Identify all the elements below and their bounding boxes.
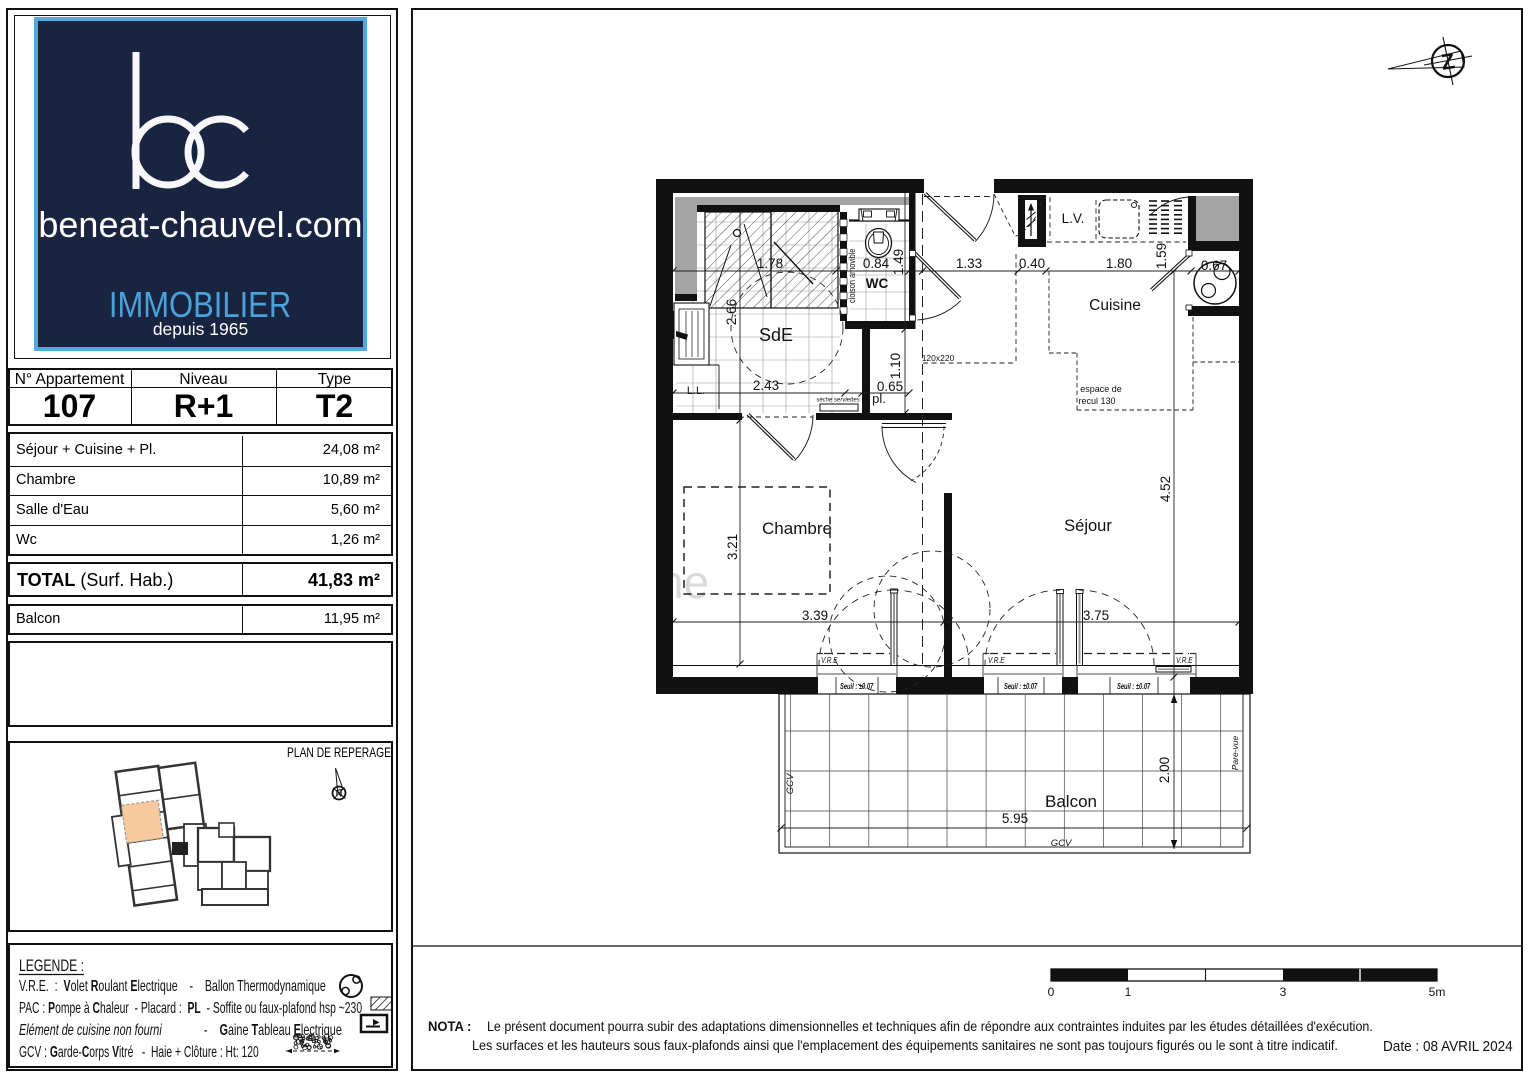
svg-text:1.78: 1.78 (757, 256, 783, 271)
svg-text:1: 1 (1125, 985, 1132, 999)
svg-text:Cuisine: Cuisine (1089, 297, 1141, 314)
svg-text:Les surfaces et les hauteurs s: Les surfaces et les hauteurs sous faux-p… (472, 1037, 1338, 1053)
svg-text:3.75: 3.75 (1083, 608, 1109, 623)
svg-text:3.39: 3.39 (802, 608, 828, 623)
svg-text:0.40: 0.40 (1019, 256, 1045, 271)
svg-text:WC: WC (866, 276, 889, 291)
svg-text:espace de: espace de (1080, 384, 1122, 394)
svg-text:L.L.: L.L. (687, 385, 705, 397)
svg-text:Seuil : ±0.07: Seuil : ±0.07 (1117, 683, 1151, 691)
svg-text:V.R.E: V.R.E (1176, 655, 1193, 665)
svg-text:120x220: 120x220 (922, 353, 955, 363)
svg-text:sèche serviettes: sèche serviettes (816, 398, 859, 404)
svg-text:recul 130: recul 130 (1078, 396, 1115, 406)
svg-text:V.R.E: V.R.E (821, 655, 838, 665)
svg-text:5.95: 5.95 (1002, 811, 1028, 826)
svg-text:1.49: 1.49 (891, 249, 906, 275)
svg-text:5m: 5m (1429, 985, 1446, 999)
svg-text:Elément de cuisine non fourni: Elément de cuisine non fourni - Gaine Ta… (19, 1021, 342, 1038)
svg-text:0.84: 0.84 (863, 256, 890, 271)
svg-text:N: N (336, 789, 343, 799)
svg-text:GCV: GCV (785, 772, 796, 794)
svg-text:SdE: SdE (759, 325, 793, 345)
svg-text:GCV: GCV (1051, 838, 1073, 849)
svg-text:Le présent document pourra sub: Le présent document pourra subir des ada… (487, 1018, 1373, 1034)
svg-text:Séjour: Séjour (1064, 517, 1112, 535)
svg-text:V.R.E: V.R.E (988, 655, 1005, 665)
svg-text:NOTA :: NOTA : (428, 1019, 471, 1035)
svg-text:Seuil : ±0.07: Seuil : ±0.07 (1004, 683, 1038, 691)
svg-text:PAC : Pompe à Chaleur - Placa: PAC : Pompe à Chaleur - Placard : PL - S… (19, 999, 362, 1017)
svg-text:1.80: 1.80 (1106, 256, 1132, 271)
svg-text:Seuil : ±0.07: Seuil : ±0.07 (840, 683, 874, 691)
svg-text:Chambre: Chambre (762, 519, 832, 538)
svg-text:0: 0 (1048, 985, 1055, 999)
svg-text:0.67: 0.67 (1201, 258, 1227, 273)
svg-text:2.66: 2.66 (724, 299, 739, 325)
svg-text:3.21: 3.21 (725, 534, 740, 560)
svg-text:Date : 08 AVRIL 2024: Date : 08 AVRIL 2024 (1383, 1038, 1513, 1055)
svg-text:2.00: 2.00 (1157, 757, 1172, 783)
svg-text:Pare-vue: Pare-vue (1230, 735, 1240, 770)
svg-text:V.R.E. : Volet Roulant Elect: V.R.E. : Volet Roulant Electrique - Ball… (19, 977, 326, 994)
svg-text:LEGENDE :: LEGENDE : (19, 957, 84, 975)
svg-text:1.59: 1.59 (1154, 243, 1169, 269)
svg-text:2.43: 2.43 (753, 378, 779, 393)
svg-text:1.10: 1.10 (888, 353, 903, 379)
svg-text:L.V.: L.V. (1062, 211, 1085, 226)
svg-text:pl.: pl. (872, 391, 886, 406)
svg-text:4.52: 4.52 (1158, 476, 1173, 502)
svg-text:GCV : Garde-Corps Vitré - H: GCV : Garde-Corps Vitré - Haie + Clôture… (19, 1043, 259, 1061)
svg-text:cloison amovible: cloison amovible (847, 248, 857, 303)
svg-text:Balcon: Balcon (1045, 792, 1097, 811)
svg-text:1.33: 1.33 (956, 256, 982, 271)
svg-text:3: 3 (1280, 985, 1287, 999)
